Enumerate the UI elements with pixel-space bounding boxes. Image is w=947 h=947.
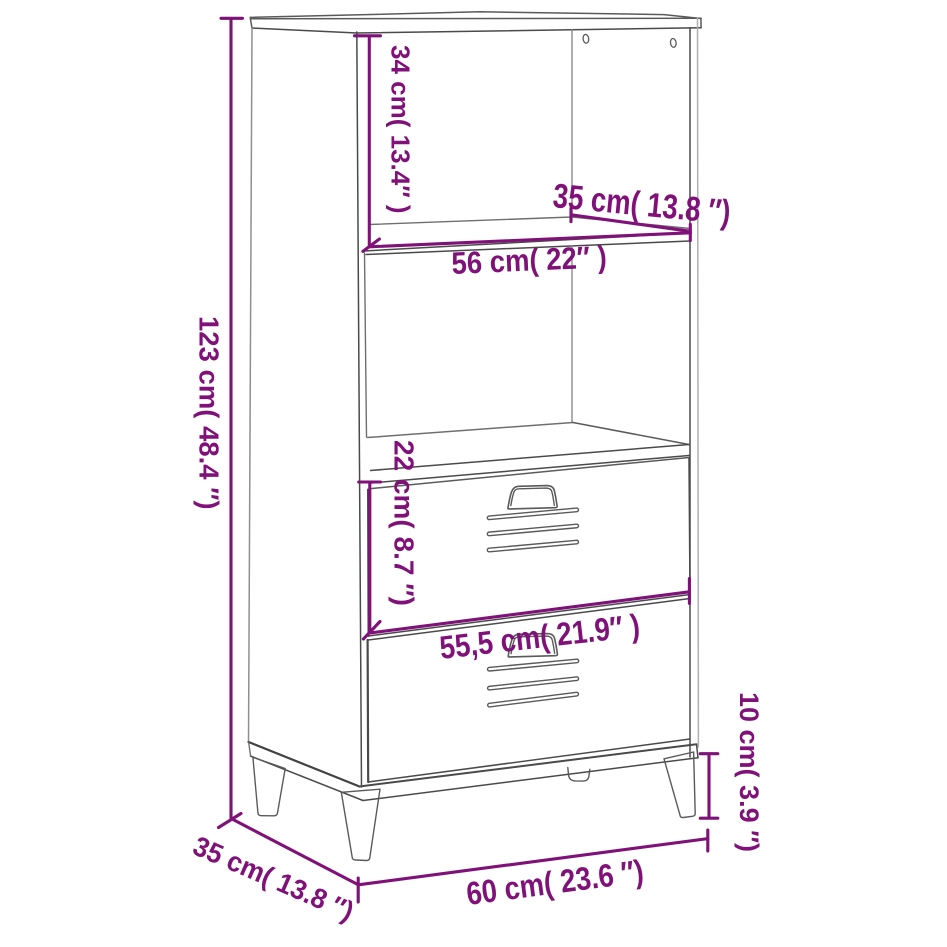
- svg-text:60 cm( 23.6 ″): 60 cm( 23.6 ″): [464, 854, 645, 913]
- svg-text:34 cm( 13.4″ ): 34 cm( 13.4″ ): [386, 45, 416, 214]
- svg-text:123 cm( 48.4 ″): 123 cm( 48.4 ″): [194, 316, 225, 510]
- svg-text:35 cm( 13.8 ″): 35 cm( 13.8 ″): [189, 830, 359, 928]
- svg-text:35 cm( 13.8 ″): 35 cm( 13.8 ″): [551, 176, 732, 232]
- svg-text:56 cm( 22″ ): 56 cm( 22″ ): [451, 240, 608, 282]
- svg-text:22 cm( 8.7 ″): 22 cm( 8.7 ″): [389, 440, 420, 606]
- svg-text:10 cm( 3.9 ″): 10 cm( 3.9 ″): [734, 692, 764, 852]
- svg-text:55,5 cm( 21.9″ ): 55,5 cm( 21.9″ ): [438, 608, 642, 666]
